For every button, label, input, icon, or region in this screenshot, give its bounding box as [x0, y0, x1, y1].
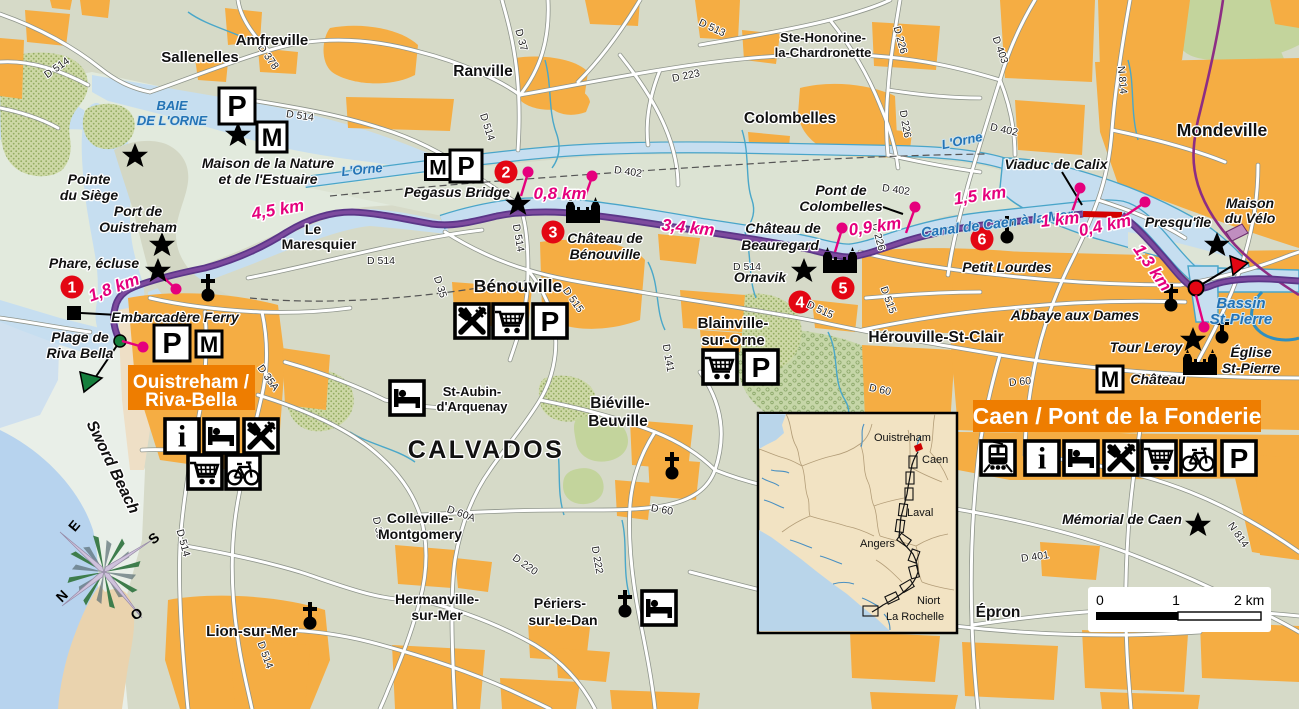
svg-text:du Siège: du Siège: [60, 187, 119, 203]
svg-text:P: P: [457, 151, 474, 181]
svg-text:Pegasus Bridge: Pegasus Bridge: [404, 184, 510, 200]
svg-text:CALVADOS: CALVADOS: [408, 436, 565, 464]
svg-text:Viaduc de Calix: Viaduc de Calix: [1005, 156, 1109, 172]
svg-text:Hérouville-St-Clair: Hérouville-St-Clair: [868, 329, 1003, 346]
svg-text:Montgomery: Montgomery: [378, 526, 462, 542]
svg-text:M: M: [1101, 367, 1119, 392]
svg-text:D 60: D 60: [1008, 375, 1031, 389]
svg-text:sur-Orne: sur-Orne: [701, 332, 764, 349]
svg-text:P: P: [227, 91, 246, 123]
svg-text:6: 6: [978, 232, 987, 249]
svg-text:Caen: Caen: [922, 454, 948, 466]
svg-text:BAIE: BAIE: [156, 98, 187, 113]
svg-text:Colleville-: Colleville-: [387, 510, 453, 526]
svg-text:4: 4: [796, 295, 805, 312]
svg-text:La Rochelle: La Rochelle: [886, 611, 944, 623]
svg-text:St-Pierre: St-Pierre: [1222, 360, 1281, 376]
svg-text:St-Aubin-: St-Aubin-: [443, 384, 501, 399]
svg-text:sur-Mer: sur-Mer: [411, 607, 463, 623]
svg-text:Presqu'île: Presqu'île: [1145, 214, 1212, 230]
svg-text:0: 0: [1096, 592, 1104, 608]
svg-text:Ranville: Ranville: [453, 63, 513, 80]
svg-text:Niort: Niort: [917, 595, 940, 607]
svg-text:Lion-sur-Mer: Lion-sur-Mer: [206, 623, 298, 640]
svg-text:Biéville-: Biéville-: [590, 395, 649, 412]
svg-text:Abbaye aux Dames: Abbaye aux Dames: [1010, 307, 1140, 323]
svg-text:Bénouville: Bénouville: [474, 276, 563, 296]
svg-text:Mémorial de Caen: Mémorial de Caen: [1062, 511, 1182, 527]
svg-text:sur-le-Dan: sur-le-Dan: [528, 612, 597, 628]
svg-text:Maison de la Nature: Maison de la Nature: [202, 155, 334, 171]
svg-text:1 km: 1 km: [1040, 208, 1081, 231]
svg-text:Beuville: Beuville: [588, 413, 648, 430]
svg-text:5: 5: [839, 281, 848, 298]
svg-text:Phare, écluse: Phare, écluse: [49, 255, 139, 271]
svg-text:Mondeville: Mondeville: [1177, 120, 1268, 140]
svg-text:Blainville-: Blainville-: [698, 315, 769, 332]
svg-text:Bénouville: Bénouville: [570, 246, 641, 262]
svg-text:Château: Château: [1130, 371, 1186, 387]
svg-text:Port de: Port de: [114, 203, 162, 219]
svg-text:Maresquier: Maresquier: [282, 236, 357, 252]
svg-text:Embarcadère Ferry: Embarcadère Ferry: [111, 309, 240, 325]
svg-text:d'Arquenay: d'Arquenay: [437, 399, 509, 414]
svg-text:Tour Leroy: Tour Leroy: [1110, 339, 1184, 355]
svg-text:et de l'Estuaire: et de l'Estuaire: [218, 171, 317, 187]
svg-text:Pont de: Pont de: [815, 182, 867, 198]
svg-text:du Vélo: du Vélo: [1225, 210, 1276, 226]
svg-text:Périers-: Périers-: [534, 595, 586, 611]
svg-text:M: M: [200, 332, 218, 357]
svg-text:Angers: Angers: [860, 538, 895, 550]
svg-text:Sallenelles: Sallenelles: [161, 49, 239, 66]
svg-text:Caen / Pont de la Fonderie: Caen / Pont de la Fonderie: [973, 403, 1262, 429]
svg-text:2 km: 2 km: [1234, 592, 1264, 608]
svg-text:Épron: Épron: [976, 604, 1021, 621]
svg-text:Ste-Honorine-: Ste-Honorine-: [780, 30, 866, 45]
svg-text:P: P: [162, 328, 181, 360]
svg-text:Riva-Bella: Riva-Bella: [145, 390, 237, 411]
svg-text:DE L'ORNE: DE L'ORNE: [137, 113, 208, 128]
svg-text:la-Chardronette: la-Chardronette: [775, 45, 872, 60]
svg-text:Bassin: Bassin: [1216, 295, 1265, 312]
svg-text:Colombelles: Colombelles: [799, 198, 882, 214]
svg-text:3: 3: [549, 225, 558, 242]
svg-text:Château de: Château de: [567, 230, 643, 246]
svg-text:D 514: D 514: [367, 255, 395, 267]
svg-text:Le: Le: [305, 221, 322, 237]
svg-text:Ouistreham: Ouistreham: [99, 219, 177, 235]
svg-text:Plage de: Plage de: [51, 329, 109, 345]
svg-text:Petit Lourdes: Petit Lourdes: [962, 259, 1052, 275]
svg-text:St-Pierre: St-Pierre: [1210, 311, 1273, 328]
svg-text:N 814: N 814: [1115, 66, 1129, 95]
svg-text:Laval: Laval: [907, 507, 933, 519]
svg-text:Maison: Maison: [1226, 195, 1274, 211]
svg-text:Hermanville-: Hermanville-: [395, 591, 479, 607]
svg-text:M: M: [429, 157, 447, 180]
svg-text:2: 2: [502, 165, 511, 182]
svg-text:Château de: Château de: [745, 220, 821, 236]
svg-text:Amfreville: Amfreville: [236, 32, 309, 49]
svg-text:Colombelles: Colombelles: [744, 110, 836, 127]
svg-text:1: 1: [1172, 592, 1180, 608]
svg-text:Pointe: Pointe: [68, 171, 111, 187]
svg-text:0,8 km: 0,8 km: [534, 184, 587, 203]
svg-text:Église: Église: [1230, 344, 1271, 360]
svg-text:M: M: [262, 124, 283, 152]
svg-text:Ornavik: Ornavik: [734, 269, 787, 285]
svg-text:Riva Bella: Riva Bella: [47, 345, 114, 361]
svg-text:Ouistreham: Ouistreham: [874, 432, 931, 444]
svg-text:Beauregard: Beauregard: [741, 237, 819, 253]
svg-text:1: 1: [68, 280, 77, 297]
